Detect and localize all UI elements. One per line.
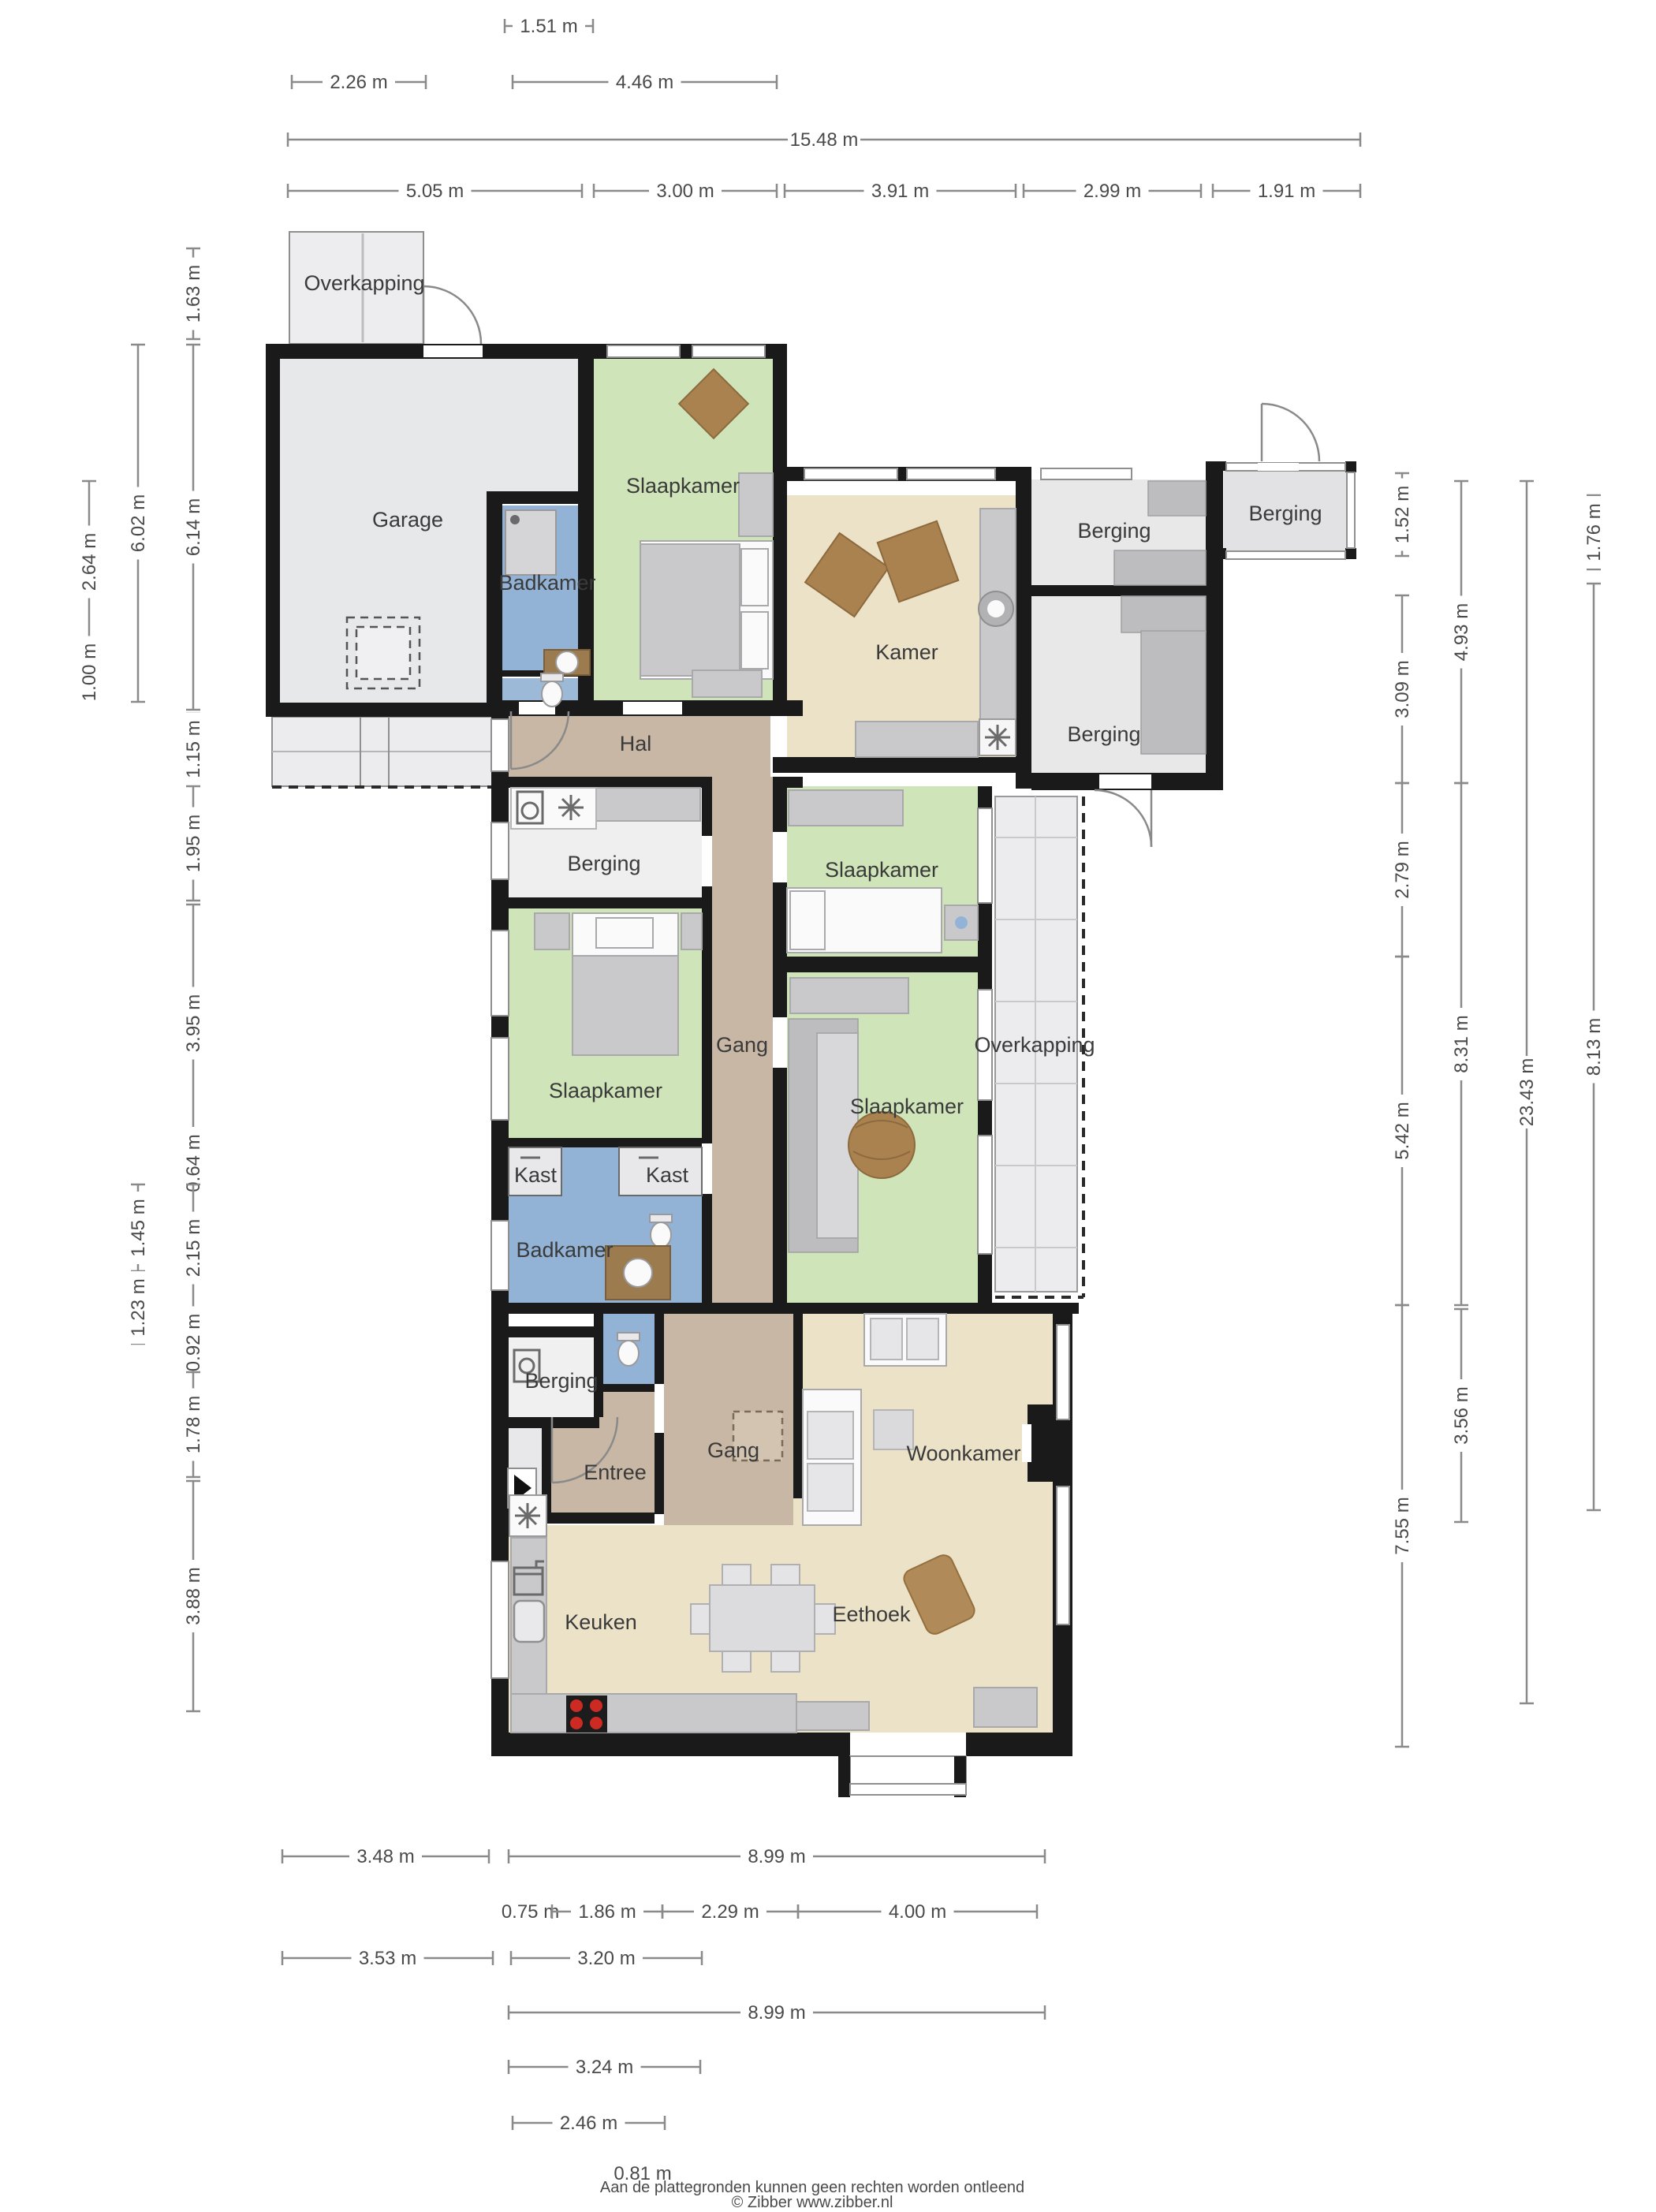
room-label-overkapping-tl: Overkapping bbox=[304, 271, 424, 295]
dim-label: 1.23 m bbox=[128, 1278, 149, 1336]
dining-table bbox=[710, 1585, 815, 1651]
berging-b-counter-2 bbox=[1141, 631, 1206, 754]
dim-bottom-4: 2.29 m bbox=[662, 1900, 798, 1923]
vanity-sink-mid bbox=[606, 1246, 670, 1300]
berging-a-counter-2 bbox=[1114, 550, 1206, 585]
dim-left-13: 2.64 m bbox=[77, 481, 101, 643]
dim-label: 3.91 m bbox=[871, 181, 929, 202]
dim-label: 1.95 m bbox=[183, 815, 204, 872]
dim-label: 3.20 m bbox=[577, 1948, 635, 1969]
dim-bottom-3: 1.86 m bbox=[552, 1900, 662, 1923]
sofa-top bbox=[864, 1314, 946, 1366]
rug-round bbox=[849, 1112, 915, 1178]
room-label-badkamer-tl: Badkamer bbox=[498, 571, 595, 595]
sideboard-woonkamer bbox=[974, 1688, 1037, 1727]
room-label-berging-c: Berging bbox=[1248, 502, 1322, 525]
cabinet bbox=[739, 473, 773, 536]
dim-label: 5.42 m bbox=[1392, 1102, 1413, 1159]
room-label-hal: Hal bbox=[620, 732, 652, 755]
dim-label: 1.76 m bbox=[1583, 503, 1605, 561]
room-label-gang-mid: Gang bbox=[716, 1033, 768, 1057]
dim-left-14: 1.00 m bbox=[77, 636, 101, 709]
dim-label: 2.26 m bbox=[330, 72, 387, 93]
dim-label: 2.15 m bbox=[183, 1219, 204, 1277]
dim-left-12: 1.23 m bbox=[126, 1271, 150, 1344]
room-label-kast-right: Kast bbox=[646, 1163, 689, 1187]
dim-label: 8.31 m bbox=[1451, 1015, 1472, 1072]
toilet-mid bbox=[650, 1214, 672, 1248]
room-label-slaapkamer-tl: Slaapkamer bbox=[626, 474, 740, 498]
dim-label: 2.99 m bbox=[1083, 181, 1141, 202]
sofa-left bbox=[803, 1389, 861, 1525]
cooktop bbox=[566, 1695, 607, 1733]
room-label-slaapkamer-br: Slaapkamer bbox=[850, 1095, 964, 1118]
garage-south-band bbox=[272, 717, 499, 787]
dim-right-10: 8.13 m bbox=[1582, 584, 1606, 1510]
dim-right-8: 23.43 m bbox=[1515, 481, 1539, 1703]
dim-top-2: 4.46 m bbox=[513, 70, 777, 94]
dim-label: 0.64 m bbox=[183, 1134, 204, 1192]
dim-label: 5.05 m bbox=[406, 181, 464, 202]
toilet-tl bbox=[541, 673, 563, 707]
dim-label: 3.48 m bbox=[356, 1846, 414, 1867]
dim-label: 4.00 m bbox=[889, 1901, 946, 1923]
kamer-vent-box bbox=[979, 719, 1016, 755]
dim-label: 3.00 m bbox=[656, 181, 714, 202]
room-label-slaapkamer-tr: Slaapkamer bbox=[825, 858, 938, 882]
dim-label: 3.95 m bbox=[183, 994, 204, 1052]
dim-right-4: 7.55 m bbox=[1390, 1305, 1414, 1747]
dim-label: 1.91 m bbox=[1258, 181, 1315, 202]
dim-label: 1.78 m bbox=[183, 1396, 204, 1453]
room-label-overkapping-right: Overkapping bbox=[974, 1033, 1095, 1057]
room-label-eethoek: Eethoek bbox=[832, 1602, 911, 1626]
dim-label: 1.00 m bbox=[79, 643, 100, 701]
dim-top-3: 15.48 m bbox=[288, 128, 1360, 151]
dim-left-11: 1.45 m bbox=[126, 1184, 150, 1271]
kitchen-sink bbox=[514, 1601, 544, 1642]
dim-top-7: 2.99 m bbox=[1024, 179, 1201, 203]
vent-box-kitchen bbox=[509, 1495, 546, 1536]
dim-left-9: 3.88 m bbox=[181, 1481, 205, 1711]
dim-label: 3.09 m bbox=[1392, 660, 1413, 718]
bed-tr bbox=[787, 888, 942, 953]
berging-b-door bbox=[1095, 790, 1151, 847]
dim-top-6: 3.91 m bbox=[785, 179, 1016, 203]
dim-right-7: 3.56 m bbox=[1449, 1309, 1473, 1522]
dim-bottom-5: 4.00 m bbox=[798, 1900, 1037, 1923]
bay-window bbox=[838, 1756, 966, 1797]
dim-left-2: 1.15 m bbox=[181, 713, 205, 785]
room-label-berging-b: Berging bbox=[1067, 722, 1140, 746]
dim-left-0: 1.63 m bbox=[181, 248, 205, 339]
room-label-kast-left: Kast bbox=[514, 1163, 558, 1187]
dim-label: 6.14 m bbox=[183, 498, 204, 556]
dim-label: 3.53 m bbox=[359, 1948, 416, 1969]
bed-main bbox=[640, 541, 773, 679]
berging-b-counter-1 bbox=[1121, 596, 1206, 632]
dim-label: 1.63 m bbox=[183, 265, 204, 323]
room-label-gang-lower: Gang bbox=[707, 1438, 759, 1462]
dim-right-1: 3.09 m bbox=[1390, 595, 1414, 783]
dim-label: 15.48 m bbox=[790, 129, 859, 151]
dim-left-7: 0.92 m bbox=[181, 1307, 205, 1379]
dim-bottom-10: 2.46 m bbox=[513, 2111, 665, 2135]
dim-right-3: 5.42 m bbox=[1390, 957, 1414, 1305]
room-label-slaapkamer-left: Slaapkamer bbox=[549, 1079, 662, 1102]
desk-br bbox=[790, 978, 908, 1013]
kamer-sideboard bbox=[856, 722, 978, 757]
dim-label: 1.45 m bbox=[128, 1199, 149, 1256]
room-label-badkamer-mid: Badkamer bbox=[516, 1238, 613, 1262]
dim-label: 2.29 m bbox=[701, 1901, 759, 1923]
dim-bottom-6: 3.53 m bbox=[282, 1946, 493, 1970]
dim-label: 1.15 m bbox=[183, 720, 204, 778]
dim-right-2: 2.79 m bbox=[1390, 783, 1414, 957]
dim-bottom-0: 3.48 m bbox=[282, 1845, 489, 1868]
room-label-berging-small: Berging bbox=[524, 1369, 598, 1393]
dim-label: 1.86 m bbox=[578, 1901, 636, 1923]
dim-left-4: 3.95 m bbox=[181, 905, 205, 1142]
toilet-small bbox=[617, 1333, 640, 1366]
wardrobe-tr bbox=[789, 790, 903, 826]
room-label-kamer: Kamer bbox=[875, 640, 938, 664]
dim-label: 4.93 m bbox=[1451, 603, 1472, 661]
front-door bbox=[423, 286, 481, 344]
room-label-berging-a: Berging bbox=[1077, 519, 1151, 543]
dim-bottom-9: 3.24 m bbox=[509, 2055, 700, 2079]
room-label-berging-mid: Berging bbox=[567, 852, 640, 875]
dim-label: 2.79 m bbox=[1392, 841, 1413, 898]
dim-label: 0.92 m bbox=[183, 1314, 204, 1371]
dim-label: 3.56 m bbox=[1451, 1386, 1472, 1444]
dim-left-3: 1.95 m bbox=[181, 786, 205, 901]
dim-label: 3.24 m bbox=[576, 2057, 633, 2078]
dim-left-6: 2.15 m bbox=[181, 1184, 205, 1311]
dim-label: 0.75 m bbox=[502, 1901, 559, 1923]
bench bbox=[692, 670, 762, 697]
dim-label: 7.55 m bbox=[1392, 1497, 1413, 1554]
dim-label: 1.52 m bbox=[1392, 486, 1413, 543]
room-label-entree: Entree bbox=[584, 1460, 647, 1484]
dim-label: 23.43 m bbox=[1516, 1058, 1538, 1127]
floorplan-drawing: OverkappingGarageSlaapkamerBadkamerKamer… bbox=[0, 0, 1656, 2208]
room-label-garage: Garage bbox=[372, 508, 443, 532]
berging-c-door bbox=[1262, 404, 1319, 461]
dim-left-1: 6.14 m bbox=[181, 345, 205, 710]
dim-label: 8.99 m bbox=[748, 1846, 805, 1867]
sofa-br bbox=[789, 1019, 858, 1252]
footer-credit: © Zibber www.zibber.nl bbox=[732, 2194, 893, 2208]
dim-bottom-7: 3.20 m bbox=[511, 1946, 702, 1970]
kitchen-counter-bottom bbox=[511, 1694, 796, 1733]
dim-right-6: 8.31 m bbox=[1449, 783, 1473, 1305]
dim-label: 3.88 m bbox=[183, 1567, 204, 1624]
dim-top-1: 2.26 m bbox=[292, 70, 426, 94]
shower bbox=[505, 510, 556, 575]
washer bbox=[511, 788, 596, 829]
dim-right-9: 1.76 m bbox=[1582, 495, 1606, 569]
dim-label: 2.64 m bbox=[79, 533, 100, 591]
dim-right-0: 1.52 m bbox=[1390, 473, 1414, 556]
dim-label: 2.46 m bbox=[560, 2113, 617, 2134]
dim-bottom-1: 8.99 m bbox=[509, 1845, 1045, 1868]
nightstand-tr bbox=[945, 905, 978, 940]
dim-label: 8.13 m bbox=[1583, 1018, 1605, 1076]
dim-label: 4.46 m bbox=[616, 72, 673, 93]
dim-top-8: 1.91 m bbox=[1213, 179, 1360, 203]
vanity-sink-tl bbox=[544, 650, 590, 675]
dim-label: 1.51 m bbox=[520, 16, 577, 37]
dim-left-8: 1.78 m bbox=[181, 1372, 205, 1477]
dim-label: 6.02 m bbox=[128, 494, 149, 552]
dim-left-10: 6.02 m bbox=[126, 345, 150, 702]
dim-top-5: 3.00 m bbox=[594, 179, 777, 203]
dim-bottom-8: 8.99 m bbox=[509, 2001, 1045, 2024]
dim-top-0: 1.51 m bbox=[505, 14, 593, 38]
dim-label: 8.99 m bbox=[748, 2002, 805, 2024]
floorplan-page: OverkappingGarageSlaapkamerBadkamerKamer… bbox=[0, 0, 1656, 2208]
dim-right-5: 4.93 m bbox=[1449, 481, 1473, 783]
dim-top-4: 5.05 m bbox=[288, 179, 582, 203]
room-label-keuken: Keuken bbox=[565, 1610, 637, 1634]
room-label-woonkamer: Woonkamer bbox=[906, 1442, 1020, 1465]
berging-a-counter-1 bbox=[1148, 481, 1206, 516]
